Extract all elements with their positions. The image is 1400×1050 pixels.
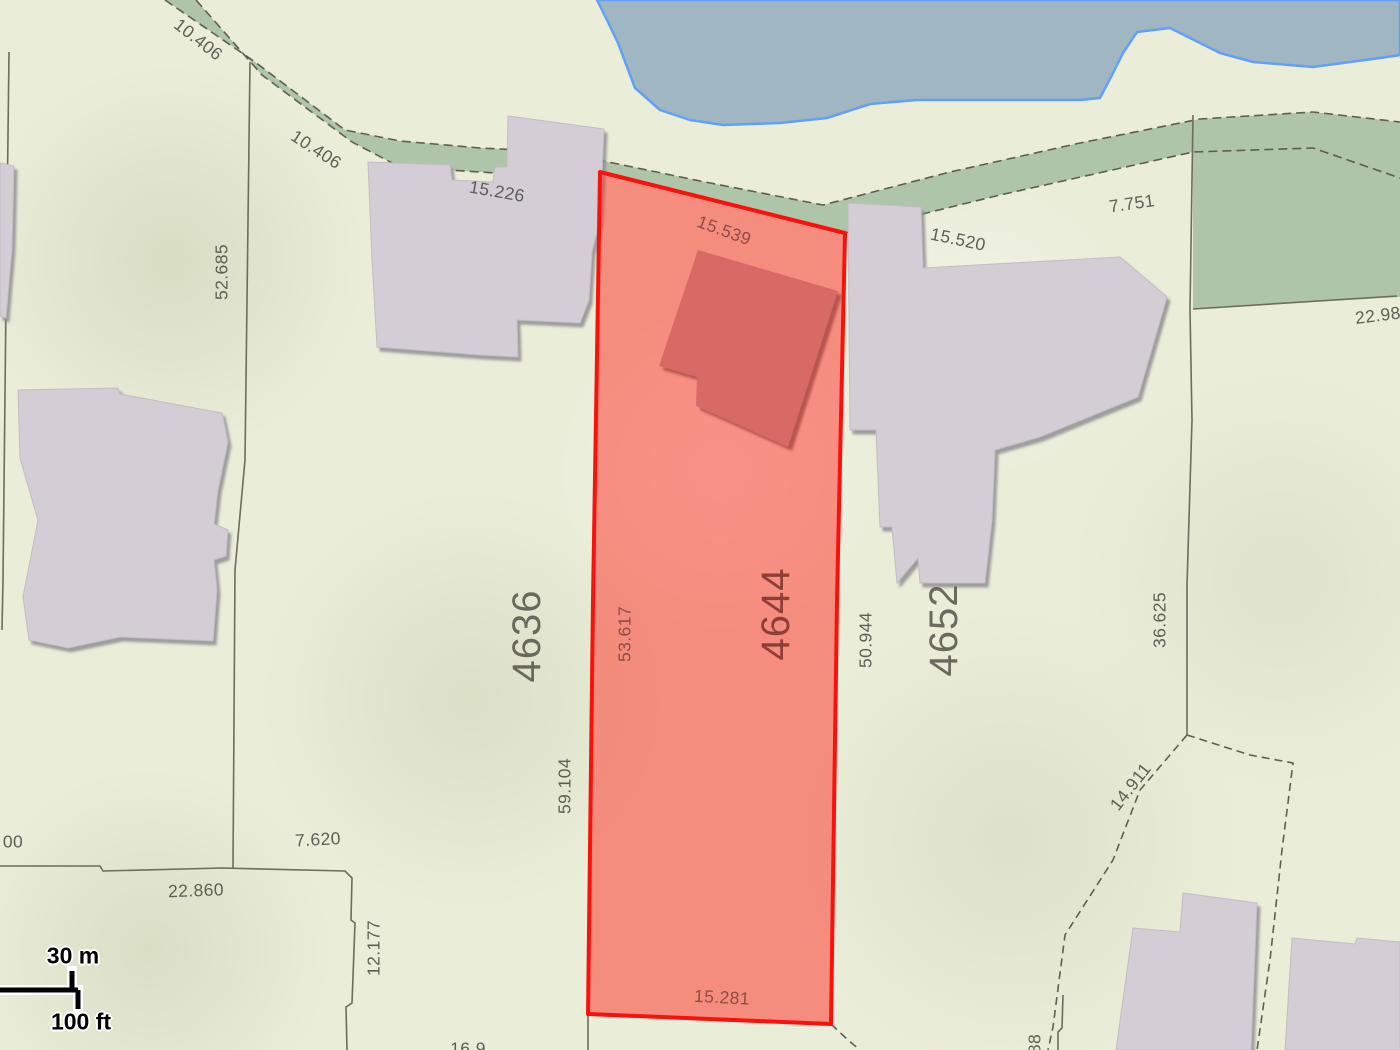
map-viewport[interactable]: 10.40610.40652.68515.22615.53915.5207.75… [0, 0, 1400, 1050]
building-footprint [18, 388, 228, 648]
building-footprint [1285, 938, 1400, 1050]
building-footprint [0, 163, 14, 318]
building-footprint [1116, 893, 1257, 1050]
building-footprint [848, 203, 1167, 583]
water-body [597, 0, 1400, 125]
map-canvas [0, 0, 1400, 1050]
